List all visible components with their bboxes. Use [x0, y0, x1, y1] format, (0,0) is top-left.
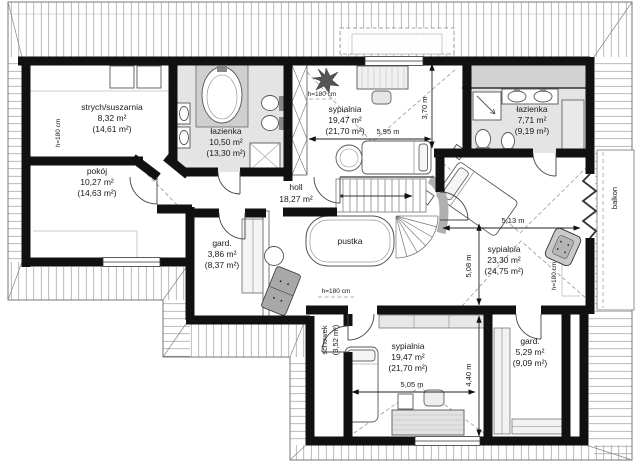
height-label-sypialnia2: h=180 cm [551, 262, 558, 291]
dormer-window [352, 34, 442, 54]
room-area-holl: 18,27 m² [279, 194, 313, 204]
dim-sypialnia2-depth: 5,08 m [464, 255, 473, 278]
room-label-holl: holl [289, 182, 302, 192]
room-label-gard2: gard. [520, 336, 539, 346]
wardrobe-icon [292, 65, 307, 175]
room-area-alt-lazienka2: (9,19 m²) [515, 126, 550, 136]
toilet-icon [262, 96, 288, 112]
bidet-icon [262, 116, 288, 131]
room-label-pokoj: pokój [87, 166, 107, 176]
room-label-pustka: pustka [337, 236, 362, 246]
shower-icon [250, 143, 280, 170]
room-area-lazienka1: 10,50 m² [209, 137, 243, 147]
room-area-pokoj: 10,27 m² [80, 177, 114, 187]
window [415, 437, 480, 446]
room-label-sypialnia1: sypialnia [328, 104, 361, 114]
room-area-sypialnia2: 23,30 m² [487, 255, 521, 265]
room-area-gard1: 3,86 m² [208, 249, 237, 259]
room-label-sypialnia3: sypialnia [391, 341, 424, 351]
bath-cabinet-icon [562, 100, 584, 150]
height-label-strych: h=180 cm [55, 119, 62, 148]
dim-sypialnia1-depth: 3,70 m [420, 97, 429, 120]
room-area-alt-schowek: (3,52 m²) [331, 324, 340, 355]
room-area-alt-sypialnia1: (21,70 m²) [325, 126, 364, 136]
round-table-icon [265, 247, 284, 266]
shower-icon [473, 92, 501, 120]
window [365, 57, 423, 66]
bed-icon [336, 141, 431, 174]
room-area-sypialnia3: 19,47 m² [391, 352, 425, 362]
room-label-schowek: schowek [320, 325, 329, 354]
room-area-gard2: 5,29 m² [516, 347, 545, 357]
room-area-alt-lazienka1: (13,30 m²) [206, 148, 245, 158]
room-area-alt-gard1: (8,37 m²) [205, 260, 240, 270]
double-washbasin-icon [502, 89, 558, 104]
window [103, 258, 160, 267]
room-area-alt-strych: (14,61 m²) [92, 124, 131, 134]
room-area-alt-pokoj: (14,63 m²) [77, 188, 116, 198]
room-label-lazienka1: łazienka [210, 126, 241, 136]
dim-sypialnia2-width: 5,13 m [502, 216, 525, 225]
height-label-sypialnia1: h=180 cm [308, 91, 337, 98]
room-area-alt-gard2: (9,09 m²) [513, 358, 548, 368]
dim-sypialnia3-depth: 4,40 m [464, 364, 473, 387]
room-area-alt-sypialnia3: (21,70 m²) [388, 363, 427, 373]
dim-sypialnia1-width: 5,95 m [377, 127, 400, 136]
dim-sypialnia3-width: 5,05 m [401, 380, 424, 389]
room-label-balkon: balkon [610, 187, 619, 209]
room-label-strych: strych/suszarnia [81, 102, 143, 112]
room-label-gard1: gard. [212, 238, 231, 248]
balcony [597, 150, 634, 310]
room-area-strych: 8,32 m² [98, 113, 127, 123]
bathtub-icon [196, 63, 248, 127]
room-label-lazienka2: łazienka [516, 104, 547, 114]
room-area-sypialnia1: 19,47 m² [328, 115, 362, 125]
floor-plan: strych/suszarnia 8,32 m² (14,61 m²) łazi… [0, 0, 638, 474]
room-label-sypialnia2: sypialnia [487, 244, 520, 254]
height-label-holl: h=180 cm [322, 288, 351, 295]
room-area-alt-sypialnia2: (24,75 m²) [484, 266, 523, 276]
room-area-lazienka2: 7,71 m² [518, 115, 547, 125]
floor-plan-canvas: strych/suszarnia 8,32 m² (14,61 m²) łazi… [0, 0, 638, 474]
wardrobe-icon [379, 315, 485, 328]
